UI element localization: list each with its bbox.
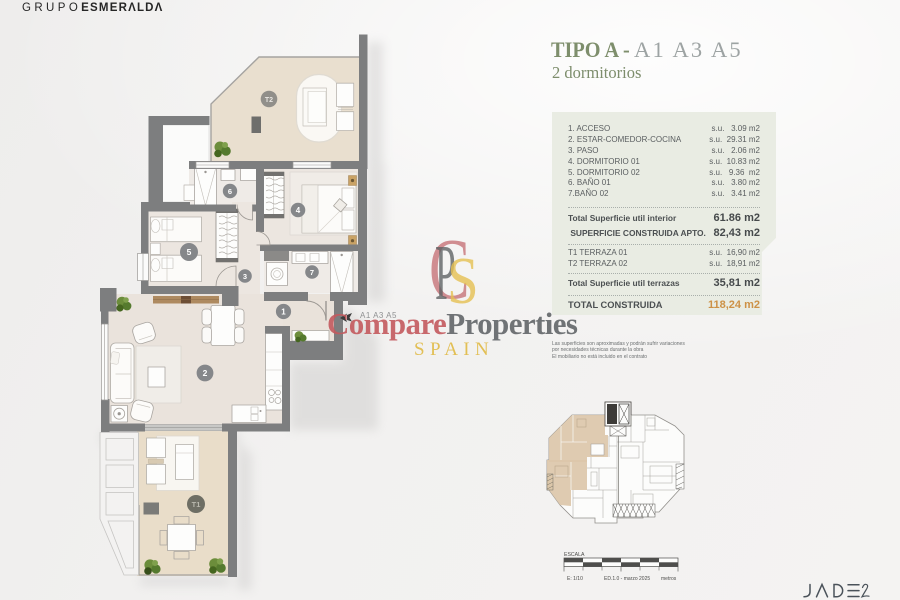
svg-text:ESCALA: ESCALA xyxy=(564,552,585,558)
svg-text:T1: T1 xyxy=(192,500,201,509)
svg-text:2: 2 xyxy=(203,368,208,378)
svg-text:T2: T2 xyxy=(265,97,273,104)
svg-text:ED.1.0 - marzo 2025: ED.1.0 - marzo 2025 xyxy=(604,576,650,582)
svg-text:4: 4 xyxy=(296,206,301,215)
svg-text:E: 1/10: E: 1/10 xyxy=(567,576,583,582)
svg-text:6: 6 xyxy=(228,187,232,196)
svg-text:metros: metros xyxy=(661,576,677,582)
svg-text:1: 1 xyxy=(281,308,286,317)
svg-text:5: 5 xyxy=(187,247,192,257)
svg-text:7: 7 xyxy=(310,268,314,277)
svg-text:3: 3 xyxy=(243,272,247,281)
